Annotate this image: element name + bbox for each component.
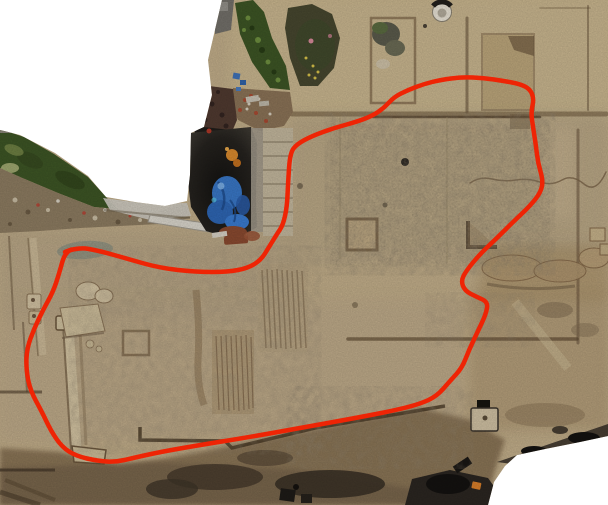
orthophoto-canvas — [0, 0, 608, 505]
screenshot-root — [0, 0, 608, 505]
